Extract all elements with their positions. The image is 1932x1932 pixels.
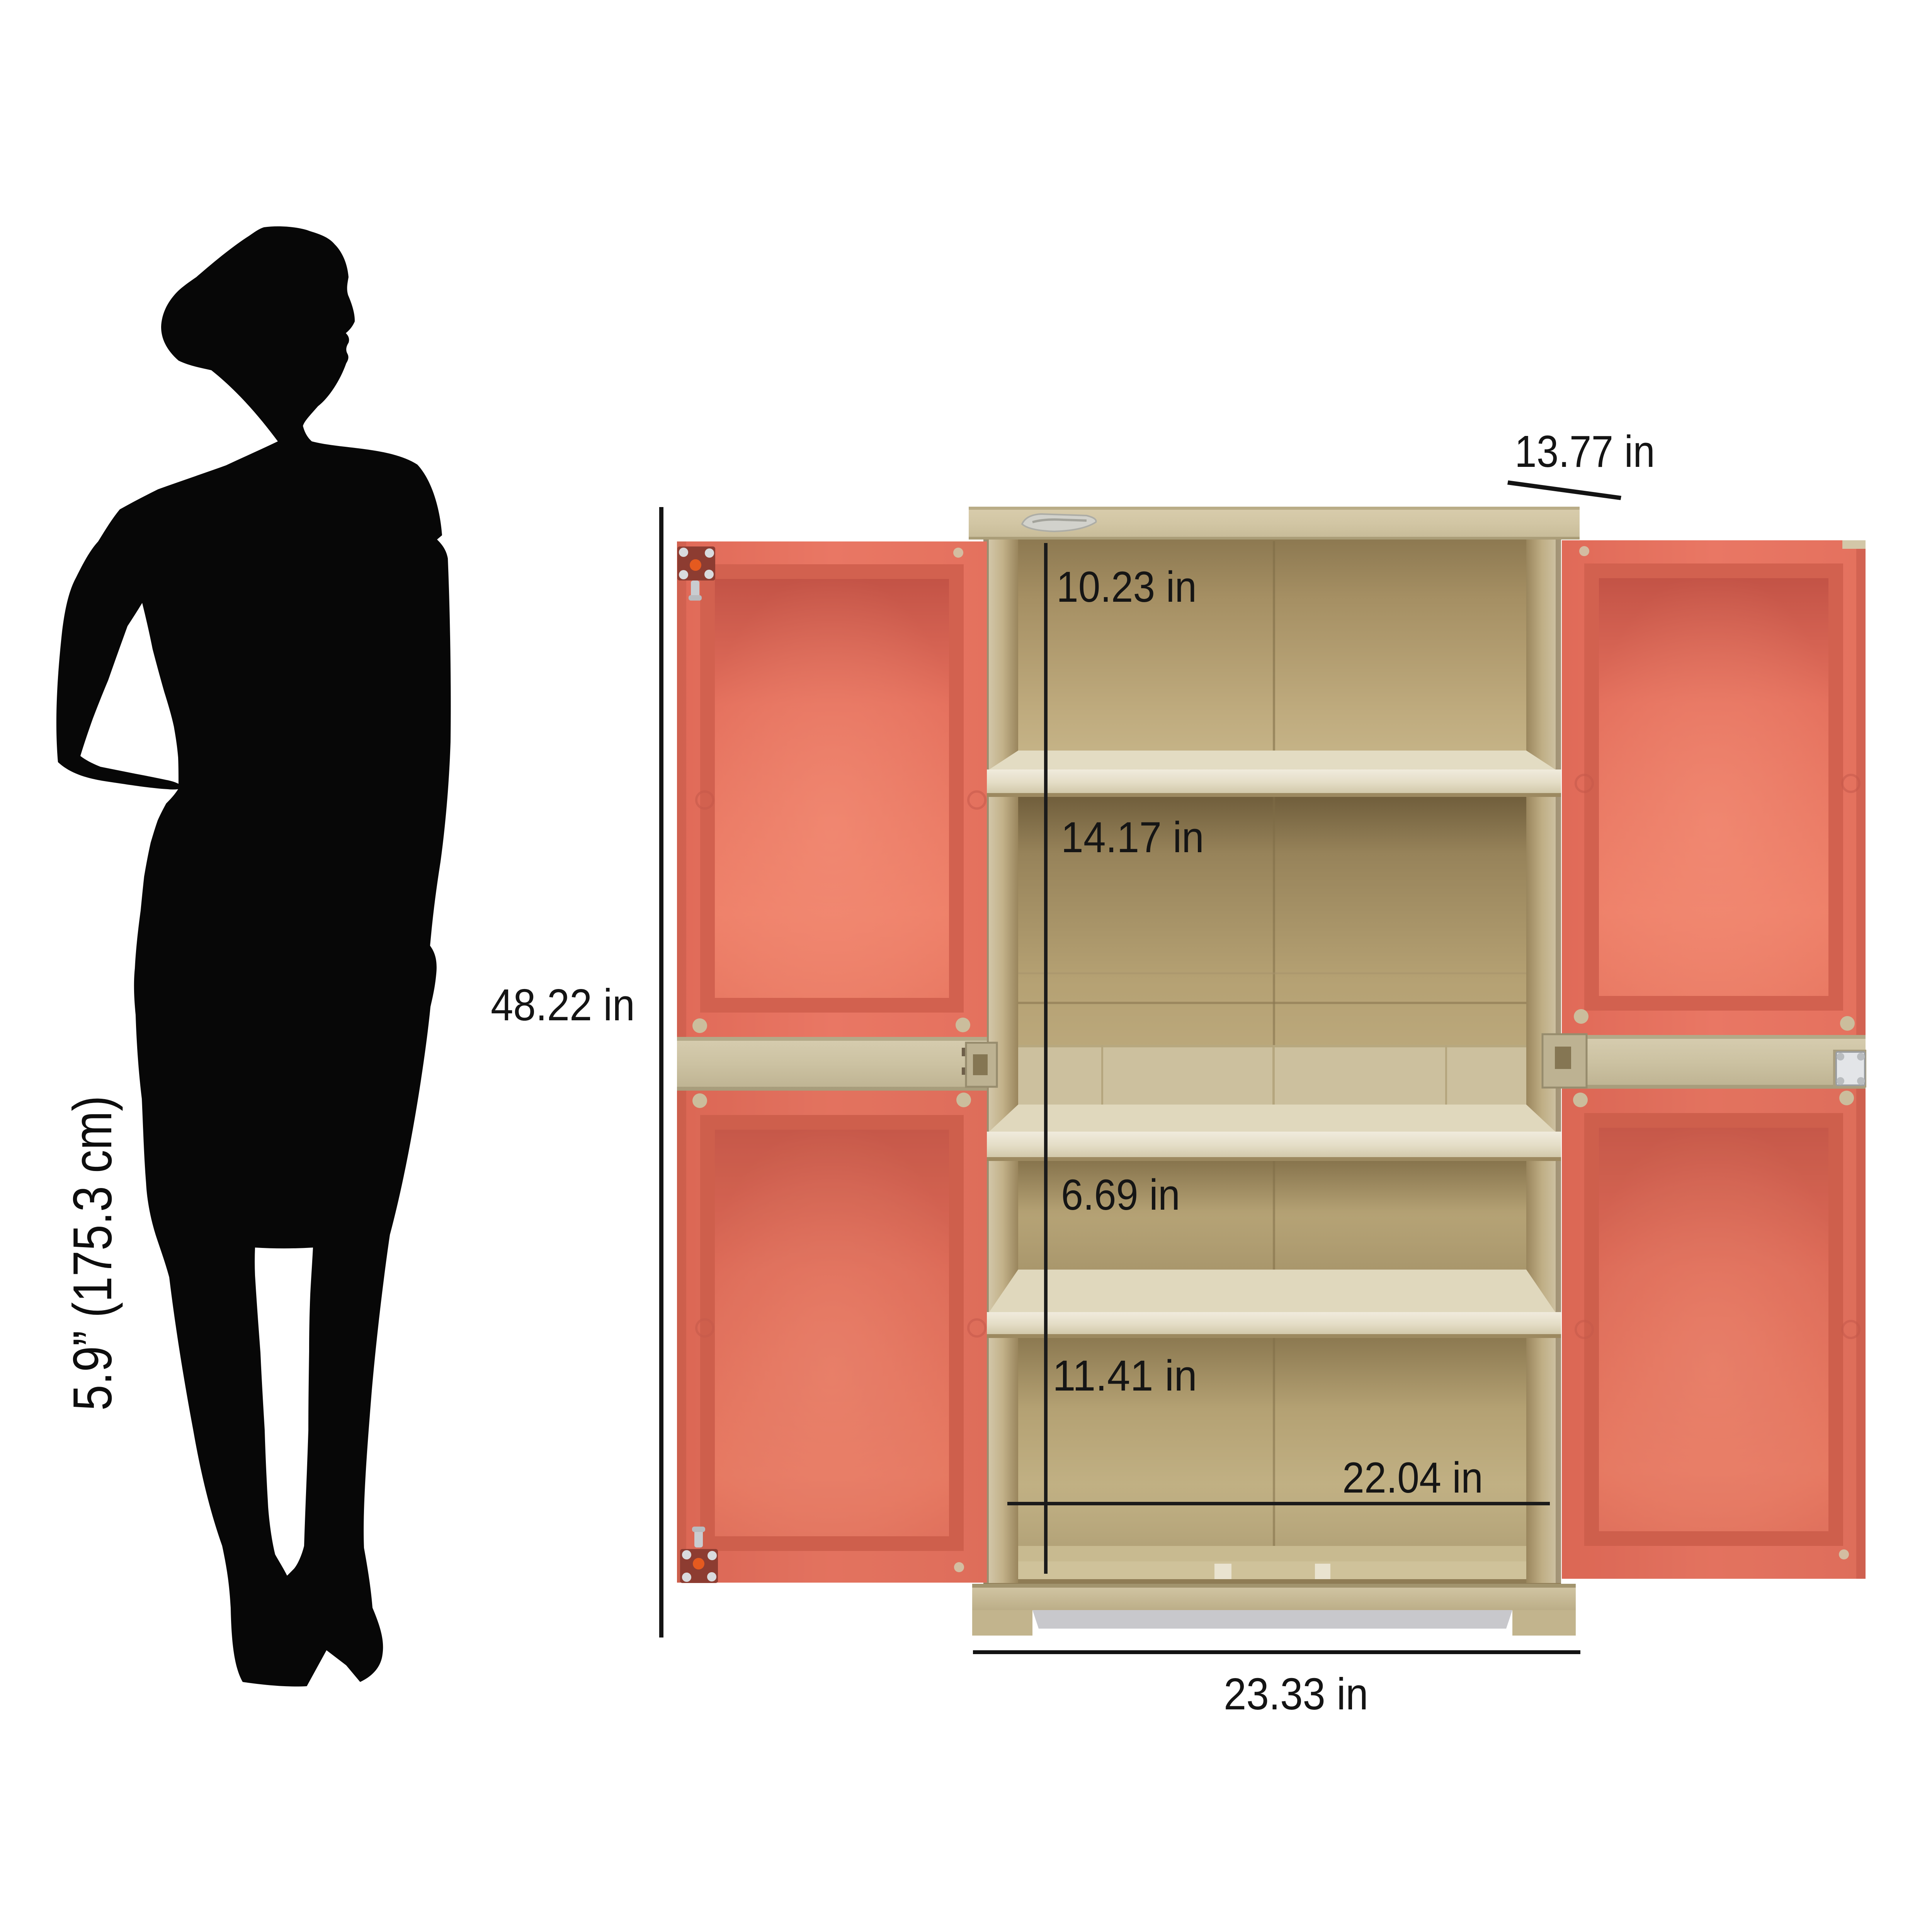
svg-text:13.77 in: 13.77 in [1515,426,1655,477]
svg-text:11.41 in: 11.41 in [1053,1352,1197,1400]
svg-text:23.33 in: 23.33 in [1224,1669,1368,1719]
svg-text:22.04 in: 22.04 in [1342,1454,1483,1502]
svg-text:14.17 in: 14.17 in [1061,813,1204,861]
svg-text:48.22 in: 48.22 in [491,980,635,1030]
svg-text:5.9” (175.3 cm): 5.9” (175.3 cm) [62,1096,123,1411]
svg-text:6.69 in: 6.69 in [1061,1171,1180,1219]
svg-text:10.23 in: 10.23 in [1056,563,1197,611]
